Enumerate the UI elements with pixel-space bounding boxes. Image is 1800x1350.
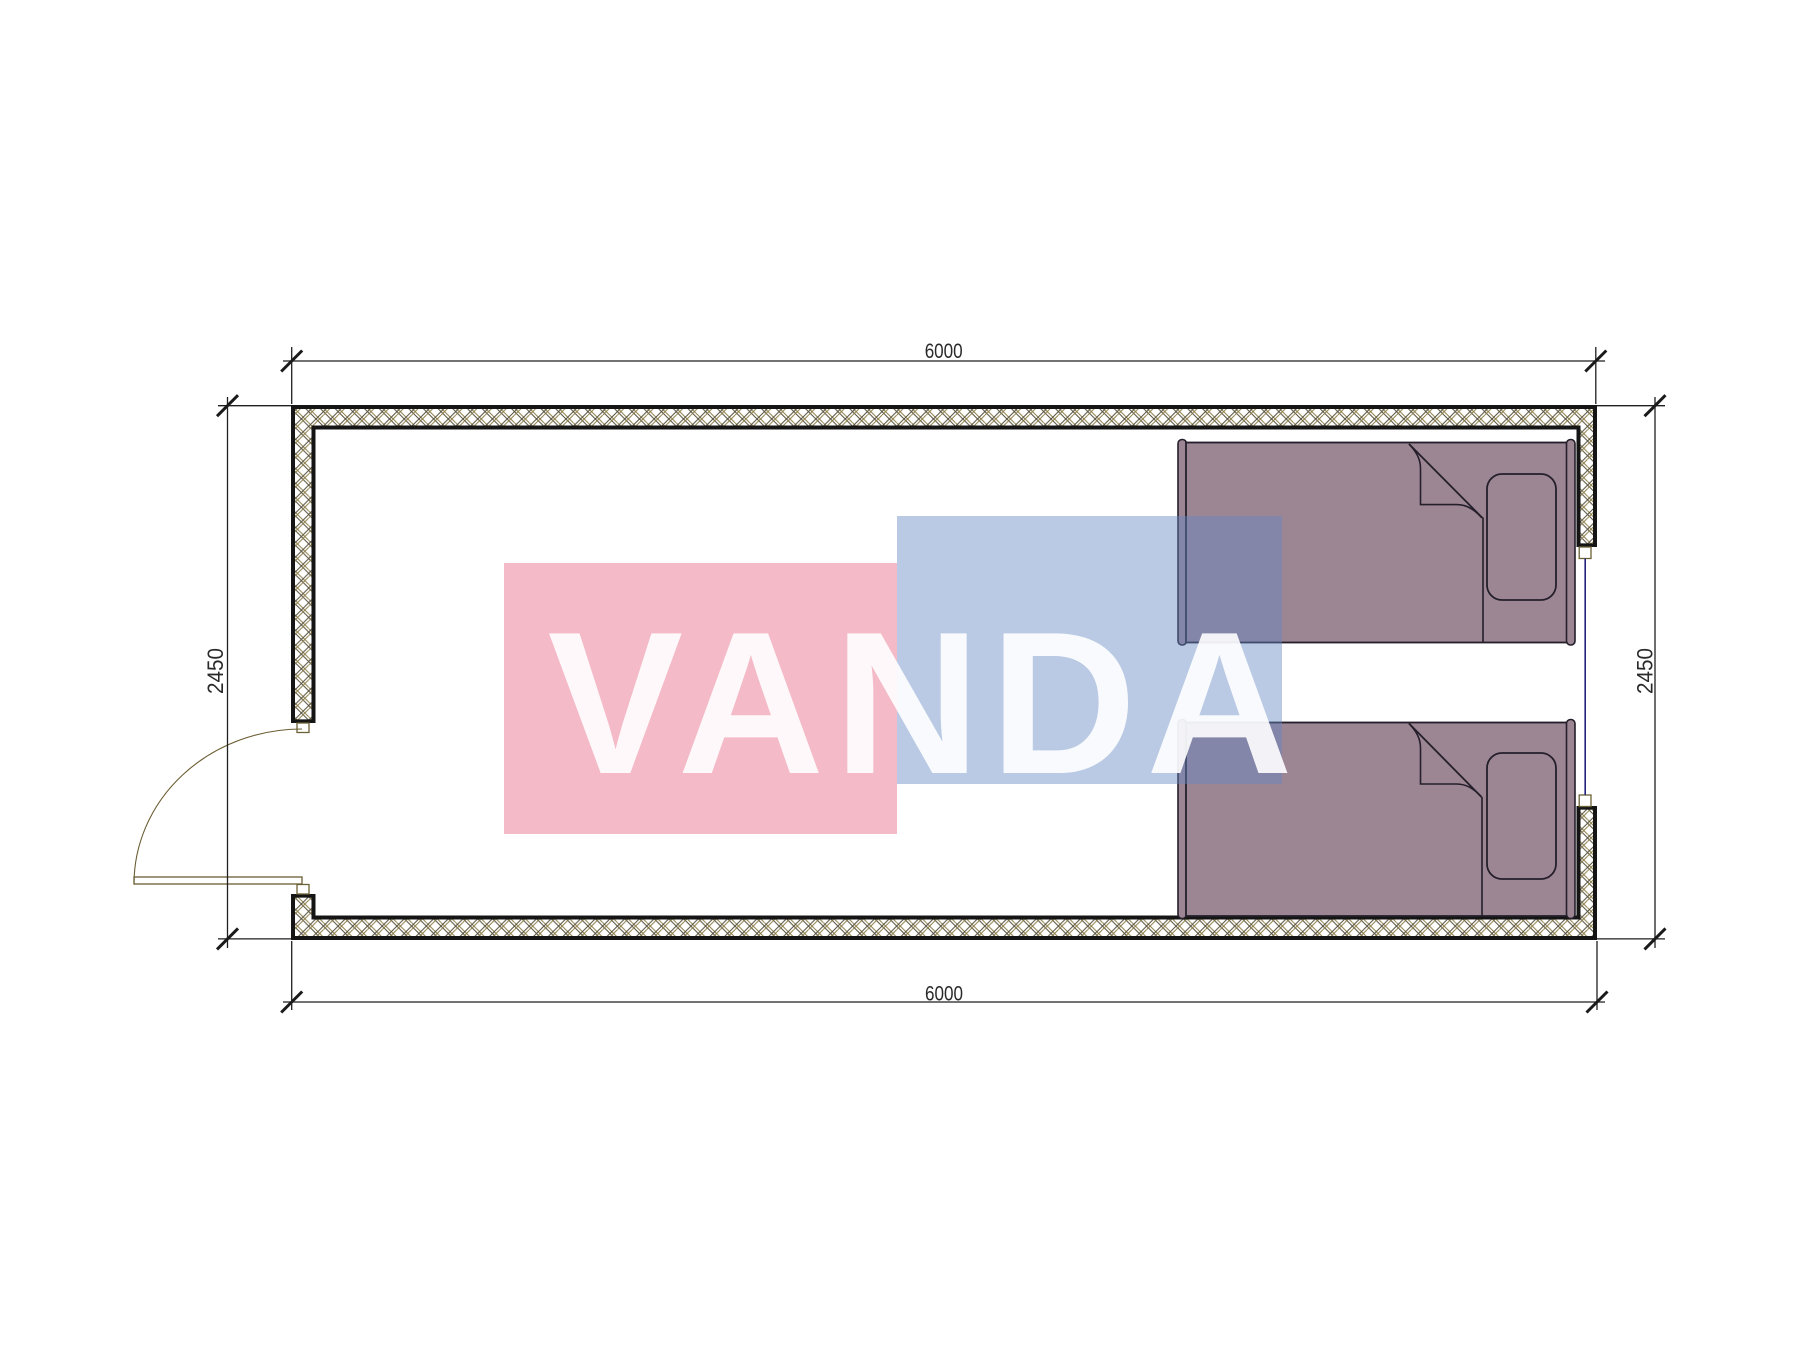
svg-text:6000: 6000 bbox=[925, 339, 963, 363]
svg-text:6000: 6000 bbox=[925, 982, 963, 1006]
svg-text:2450: 2450 bbox=[1633, 648, 1658, 694]
svg-text:2450: 2450 bbox=[203, 648, 228, 694]
svg-text:VANDA: VANDA bbox=[548, 590, 1303, 817]
